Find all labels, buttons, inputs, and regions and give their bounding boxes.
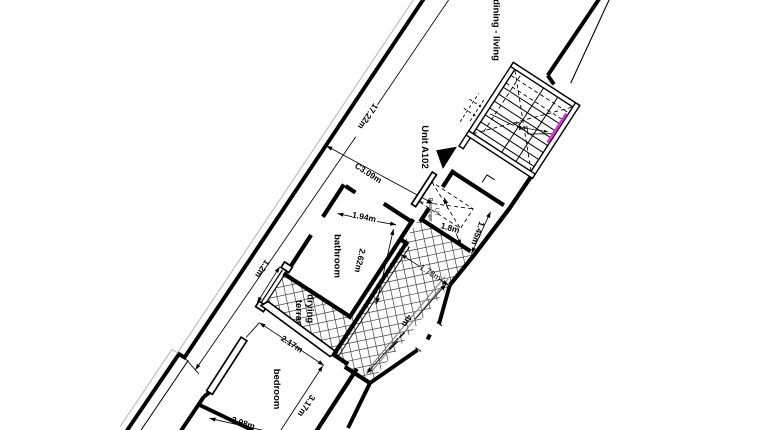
svg-text:drying: drying — [304, 294, 315, 323]
svg-text:dining - living: dining - living — [490, 0, 501, 61]
svg-text:Lift: Lift — [434, 208, 440, 215]
svg-text:bathroom: bathroom — [331, 234, 342, 278]
svg-text:bedroom: bedroom — [271, 369, 282, 410]
svg-text:Passenger: Passenger — [427, 198, 433, 222]
svg-text:Unit A102: Unit A102 — [419, 125, 430, 168]
